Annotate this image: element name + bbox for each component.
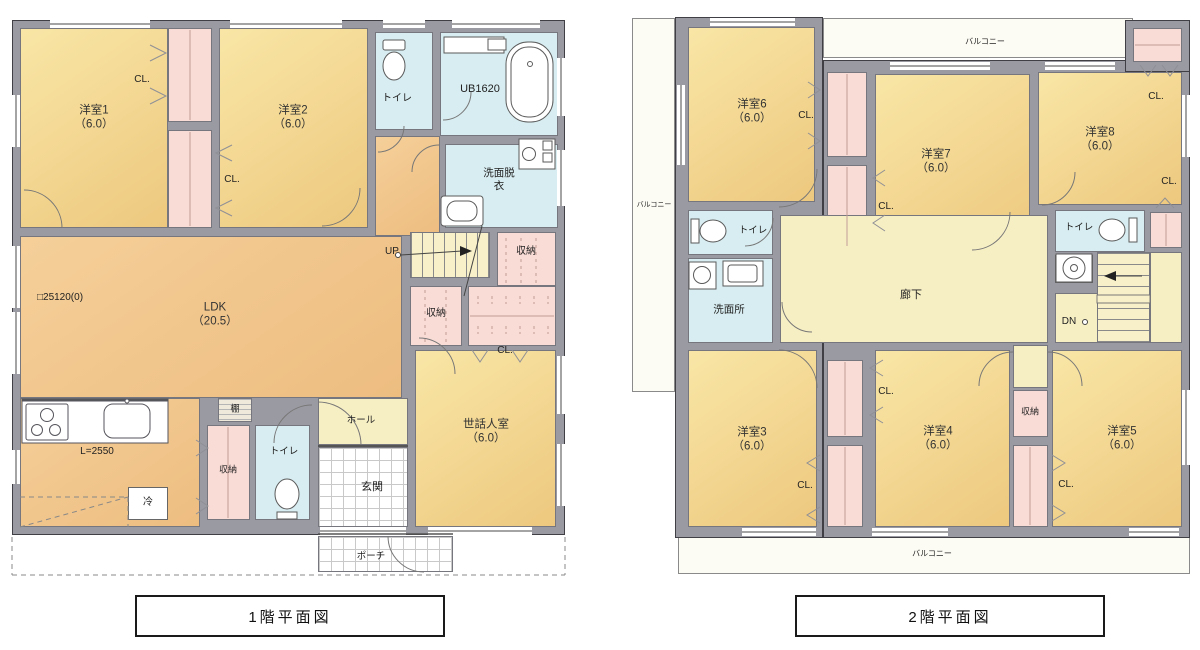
closet-label: CL.: [797, 480, 813, 493]
entrance-door: [320, 527, 406, 535]
floor-plan-canvas: 洋室1（6.0） CL. CL. 洋室2（6.0） トイレ UB1620 洗面脱…: [0, 0, 1200, 650]
closet-label: CL.: [1148, 91, 1164, 104]
room-label-bedroom1: 洋室1（6.0）: [75, 104, 114, 133]
closet-bedroom8-side: [1150, 212, 1182, 248]
stairs-up-label: UP: [385, 246, 399, 259]
room-label-bedroom4: 洋室4（6.0）: [919, 425, 958, 454]
toilet-label: トイレ: [382, 93, 412, 106]
toilet-label: トイレ: [270, 446, 299, 458]
stairs-2f: [1097, 252, 1150, 343]
hall-label: ホール: [347, 415, 376, 427]
closet-bedroom8-top: [1133, 28, 1182, 62]
closet-bedroom5: [1013, 445, 1048, 527]
closet-label: CL.: [878, 386, 894, 399]
room-label-bedroom2: 洋室2（6.0）: [274, 104, 313, 133]
storage-stairs-1f: [497, 232, 556, 286]
floor1-title: 1階平面図: [135, 595, 445, 637]
closet-label: CL.: [134, 74, 150, 87]
window: [12, 450, 20, 484]
room-label-bedroom6: 洋室6（6.0）: [733, 98, 772, 127]
balcony-label: バルコニー: [637, 202, 672, 211]
stairs-landing-2f: [1150, 252, 1182, 343]
storage-label: 収納: [426, 308, 446, 321]
counter-length-label: L=2550: [80, 446, 114, 459]
washroom-label-2f: 洗面所: [713, 303, 745, 316]
corridor-label: 廊下: [900, 289, 922, 303]
closet-label: CL.: [1058, 479, 1074, 492]
unit-bath-label: UB1620: [460, 83, 500, 97]
washer-alcove: [1055, 255, 1093, 283]
room-label-bedroom3: 洋室3（6.0）: [733, 426, 772, 455]
room-label-caretaker: 世話人室（6.0）: [463, 418, 509, 447]
corridor-nook: [1013, 345, 1048, 388]
closet-label: CL.: [798, 110, 814, 123]
porch: [318, 536, 453, 572]
closet-label: CL.: [1161, 176, 1177, 189]
washroom-label-1f: 洗面脱衣: [481, 167, 517, 193]
window: [230, 20, 342, 28]
closet-bedroom1: [168, 28, 212, 122]
closet-label: CL.: [497, 345, 513, 358]
window: [710, 18, 795, 26]
storage-label: 収納: [1021, 406, 1039, 417]
window: [12, 246, 20, 308]
closet-bedroom6: [827, 72, 867, 157]
toilet-label: トイレ: [1065, 222, 1094, 234]
porch-label: ポーチ: [357, 551, 386, 563]
window: [557, 150, 565, 206]
closet-bedroom3: [827, 445, 863, 527]
balcony-label: バルコニー: [912, 549, 952, 559]
storage-label: 収納: [516, 246, 536, 259]
entrance-label: 玄関: [361, 481, 383, 495]
room-washroom-2f: [688, 258, 773, 343]
window: [383, 20, 425, 28]
shelf-label: 棚: [230, 403, 239, 414]
window: [872, 528, 948, 536]
wall-stub: [1055, 283, 1095, 293]
closet-bedroom2: [168, 130, 212, 228]
room-toilet-1f: [375, 32, 433, 130]
room-corridor: [780, 215, 1048, 343]
balcony-label: バルコニー: [965, 37, 1005, 47]
window: [1182, 390, 1190, 465]
window: [50, 20, 150, 28]
room-toilet2-1f: [255, 425, 310, 520]
ldk-corridor: [375, 136, 440, 236]
window: [1129, 528, 1179, 536]
window: [890, 62, 990, 70]
window: [1045, 62, 1115, 70]
window: [452, 20, 540, 28]
ldk-kitchen-zone: [20, 398, 200, 527]
window: [1182, 95, 1190, 157]
stairs-1f: [410, 232, 490, 278]
room-label-ldk: LDK（20.5）: [192, 301, 237, 330]
window: [557, 356, 565, 414]
toilet-label: トイレ: [739, 225, 768, 237]
window: [428, 527, 532, 535]
closet-label: CL.: [224, 174, 240, 187]
window: [557, 444, 565, 506]
floor2-title: 2階平面図: [795, 595, 1105, 637]
window: [677, 85, 685, 165]
closet-bedroom4: [827, 360, 863, 437]
closet-label: CL.: [878, 201, 894, 214]
grid-note-label: □25120(0): [37, 292, 83, 305]
stairs-down-label: DN: [1062, 316, 1076, 329]
window: [742, 528, 816, 536]
window: [12, 95, 20, 147]
closet-caretaker: [468, 286, 556, 346]
room-label-bedroom7: 洋室7（6.0）: [917, 148, 956, 177]
fridge-label: 冷: [143, 497, 153, 510]
window: [12, 312, 20, 374]
room-label-bedroom8: 洋室8（6.0）: [1081, 126, 1120, 155]
room-label-bedroom5: 洋室5（6.0）: [1103, 425, 1142, 454]
storage-label: 収納: [219, 464, 237, 475]
window: [557, 58, 565, 116]
